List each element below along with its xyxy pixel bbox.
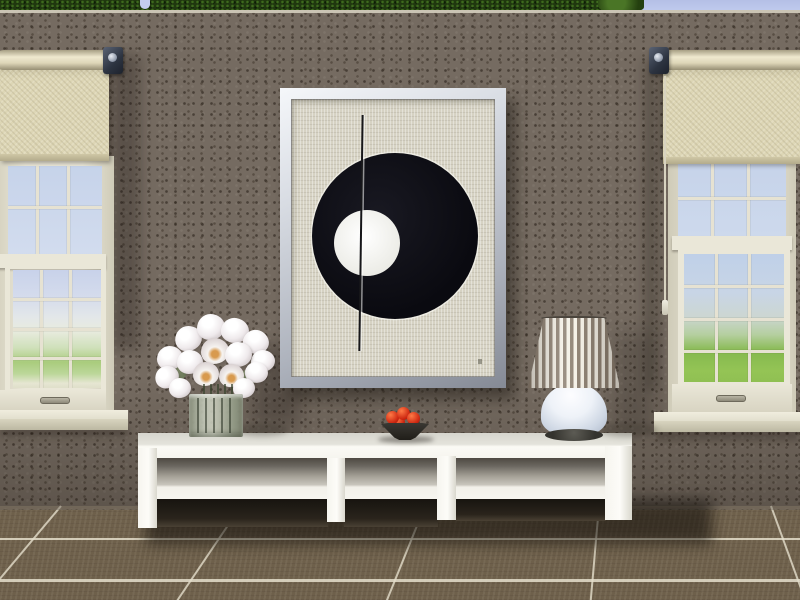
artwork-white-circle [334, 210, 400, 276]
right-sill-shadow [656, 431, 800, 439]
right-window-handle [716, 395, 746, 402]
left-window-sill [0, 410, 128, 419]
tulip-flower-open [193, 362, 219, 386]
artwork-canvas [291, 99, 495, 377]
muntin-bar [36, 166, 39, 254]
muntin-bar [8, 206, 102, 209]
hedge-sky-gap [140, 0, 150, 9]
left-blind-roller-tube [0, 50, 113, 70]
left-window-sill-front [0, 419, 128, 430]
right-blind-roller-tube [660, 50, 800, 70]
blind-pull-cord[interactable] [664, 76, 666, 304]
table-divider [437, 456, 456, 520]
blind-cord-weight [662, 300, 668, 315]
left-blind-shadow [110, 55, 140, 350]
wall-top-edge [0, 10, 800, 13]
right-blind-bracket [649, 47, 669, 74]
table-compartment [456, 458, 606, 476]
table-under-shelf-void [157, 499, 328, 527]
right-roller-blind-fabric[interactable] [663, 60, 800, 163]
table-compartment [344, 458, 438, 476]
left-blind-bottom-bar [0, 154, 109, 161]
right-window-lower-sash [678, 248, 790, 388]
table-under-shelf-void [456, 499, 606, 521]
grout-line-horizontal [0, 579, 800, 582]
left-window-upper-pane [8, 166, 102, 254]
left-window-handle [40, 397, 70, 404]
table-left-panel [138, 448, 157, 528]
bracket-pin [108, 53, 117, 62]
lamp-striped-shade[interactable] [528, 318, 620, 388]
lamp-wall-shadow [614, 332, 656, 432]
lamp-foot [545, 429, 603, 441]
framed-artwork[interactable] [280, 88, 506, 388]
table-divider [327, 458, 345, 522]
artwork-signature-mark [478, 359, 482, 364]
right-blind-bottom-bar [663, 157, 800, 164]
left-roller-blind-fabric[interactable] [0, 60, 109, 160]
sims-room-scene [0, 0, 800, 600]
table-compartment [157, 458, 328, 476]
vase-table-shadow [236, 424, 288, 436]
right-window-sill [654, 412, 800, 421]
right-window-sill-front [654, 421, 800, 432]
bracket-pin [654, 53, 663, 62]
left-window-lower-sash [5, 264, 106, 394]
muntin-bar [67, 166, 70, 254]
right-window-upper-pane [678, 164, 786, 236]
table-under-shelf-void [344, 499, 438, 527]
glass-vase[interactable] [189, 394, 243, 437]
stems-in-glass [197, 398, 235, 433]
table-right-panel [605, 446, 632, 520]
table-shelf [146, 476, 628, 499]
muntin-bar [678, 197, 786, 200]
left-blind-bracket [103, 47, 123, 74]
lamp-table-shadow [600, 423, 658, 437]
tulip-flower [169, 378, 191, 398]
lamp-shade-shading [528, 318, 620, 388]
